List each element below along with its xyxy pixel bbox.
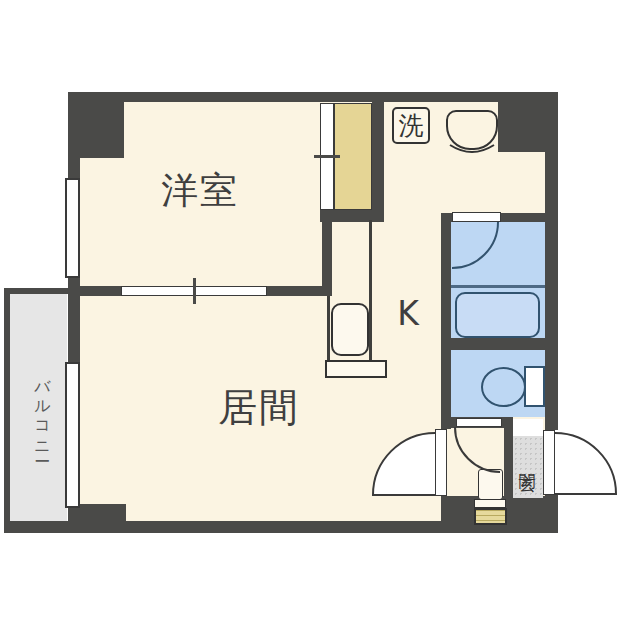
sliding-door-tick bbox=[193, 278, 196, 304]
floor-plan: 洗 洋室 居間 K 玄関 バルコニー bbox=[0, 0, 622, 622]
wall-segment bbox=[441, 213, 451, 429]
wall-block bbox=[498, 100, 545, 152]
entrance-label: 玄関 bbox=[518, 437, 538, 485]
washing-machine: 洗 bbox=[392, 107, 430, 144]
entrance-door-swing-arc bbox=[555, 433, 616, 494]
kitchen-sink bbox=[331, 303, 369, 356]
counter-edge bbox=[369, 220, 372, 362]
window bbox=[65, 362, 80, 508]
wall-segment bbox=[4, 288, 10, 533]
entrance-mat bbox=[474, 508, 507, 525]
entrance-door-swing-fill bbox=[555, 433, 616, 494]
window bbox=[65, 178, 80, 278]
wall-segment bbox=[545, 92, 558, 430]
wall-segment bbox=[441, 338, 545, 350]
wall-segment bbox=[68, 504, 126, 533]
living-door-leaf bbox=[435, 429, 447, 496]
balcony-label: バルコニー bbox=[30, 352, 54, 472]
wall-segment bbox=[322, 210, 332, 296]
entrance-door-leaf bbox=[543, 430, 555, 495]
entrance-step-edge bbox=[513, 419, 543, 436]
wall-segment bbox=[68, 92, 80, 178]
washing-machine-label: 洗 bbox=[399, 109, 424, 142]
wall-segment bbox=[68, 92, 558, 102]
kitchen-label: K bbox=[392, 292, 424, 334]
entrance-step bbox=[474, 499, 506, 508]
toilet-bowl bbox=[481, 367, 526, 407]
counter-base bbox=[325, 360, 387, 378]
bathroom-door-opening bbox=[452, 212, 501, 222]
bathtub bbox=[455, 292, 540, 338]
counter-edge bbox=[327, 296, 330, 362]
western-room-label: 洋室 bbox=[158, 168, 242, 214]
toilet-door-opening bbox=[456, 418, 502, 427]
wall-segment bbox=[4, 288, 68, 294]
wall-segment bbox=[372, 92, 384, 222]
bathroom-divider-line bbox=[451, 285, 545, 288]
wall-segment bbox=[504, 420, 513, 505]
toilet-door-panel bbox=[478, 469, 503, 500]
toilet-tank bbox=[524, 366, 545, 407]
living-room-label: 居間 bbox=[212, 384, 306, 432]
closet-door-tick bbox=[314, 155, 340, 158]
